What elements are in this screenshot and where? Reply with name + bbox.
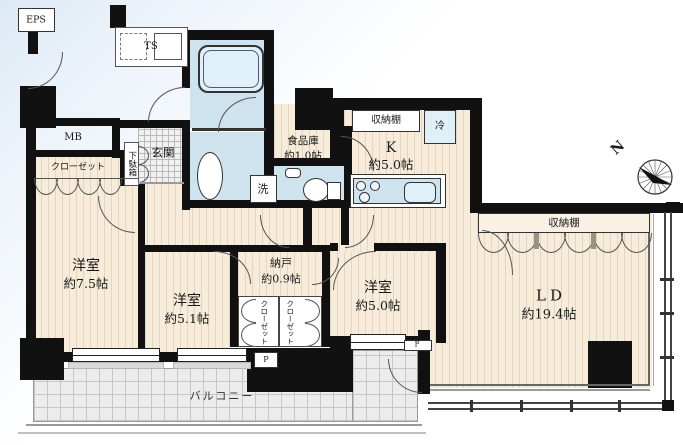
- pantry-name: 食品庫: [287, 136, 319, 147]
- bedroom-mid-size: 約5.1帖: [165, 313, 210, 326]
- kitchen-size: 約5.0帖: [369, 159, 414, 172]
- fridge-label: 冷: [435, 122, 445, 132]
- ts-inner-dashed: [120, 33, 147, 60]
- ld-name: LD: [536, 289, 566, 304]
- ld-shelf-label: 収納棚: [548, 218, 580, 229]
- closet-right-label: クローゼット: [283, 298, 297, 346]
- stove-burner: [359, 192, 370, 203]
- bedroom-right-name: 洋室: [364, 281, 392, 295]
- bedroom-main-size: 約7.5帖: [64, 278, 109, 291]
- window: [350, 334, 406, 350]
- shelf-support: [534, 233, 539, 249]
- wall-mb-bottom: [26, 150, 120, 157]
- railing-tick: [470, 400, 473, 412]
- wall-pantry-block: [295, 88, 333, 130]
- wall-segment: [182, 120, 190, 210]
- railing-right-2: [670, 212, 672, 404]
- ld-bottom-window-line-2: [430, 389, 650, 391]
- wall-ld-top: [470, 203, 683, 213]
- window: [177, 348, 247, 362]
- floor-plan: EPS TS MB 玄関 下駄箱 クローゼット 洋室 約7.5帖 洋室 約5.1…: [0, 0, 683, 445]
- wall-bath-top: [184, 30, 274, 40]
- genkan-step-line: [138, 182, 184, 184]
- wall-pillar-ld: [588, 341, 632, 388]
- railing-tick: [660, 312, 674, 315]
- shelf-support: [591, 233, 596, 249]
- railing-tick: [570, 400, 573, 412]
- wall-bedroom-right-ld: [436, 243, 446, 343]
- railing-tick: [520, 400, 523, 412]
- pipe-left-label: P: [263, 356, 268, 364]
- wall-pillar-bottom-left: [20, 338, 64, 380]
- railing-tick: [660, 278, 674, 281]
- railing-bottom-2: [428, 408, 666, 410]
- pipe-right-label: P: [415, 342, 420, 349]
- nando-size: 約0.9帖: [261, 274, 301, 285]
- mb-label: MB: [64, 133, 82, 143]
- ts-label: TS: [144, 42, 158, 52]
- window-sill: [68, 362, 164, 369]
- kitchen-name: K: [386, 141, 396, 155]
- wall-bedroom-main-right: [138, 184, 145, 354]
- toilet-sink: [285, 168, 301, 178]
- front-door-arc: [148, 87, 185, 122]
- railing-corner: [662, 400, 674, 411]
- pantry-size: 約1.0帖: [284, 151, 322, 162]
- ld-size: 約19.4帖: [522, 309, 577, 322]
- balcony-outer-line: [26, 424, 422, 426]
- shoe-cabinet-label: 下駄箱: [125, 144, 138, 184]
- washbasin: [197, 152, 223, 200]
- wall-stub: [330, 243, 338, 251]
- kitchen-sink: [404, 182, 436, 203]
- bathtub-inner: [203, 50, 259, 88]
- window: [72, 348, 160, 362]
- railing-tick: [618, 400, 621, 412]
- closet-main-label: クローゼット: [51, 164, 105, 173]
- compass-icon: [636, 158, 674, 196]
- ld-bottom-window-line: [430, 384, 650, 386]
- balcony-label: バルコニー: [190, 391, 255, 402]
- window-sill: [173, 362, 251, 369]
- bedroom-mid-name: 洋室: [173, 294, 201, 308]
- bedroom-main-name: 洋室: [72, 259, 100, 273]
- kitchen-shelf-label: 収納棚: [371, 116, 401, 126]
- laundry-label: 洗: [258, 184, 269, 195]
- wall-segment: [303, 208, 312, 245]
- ld-right-window-line-2: [653, 214, 654, 386]
- wall-corner-block: [666, 202, 680, 213]
- bedroom-right-size: 約5.0帖: [356, 300, 401, 313]
- toilet-tank: [327, 182, 341, 200]
- nando-name: 納戸: [270, 258, 292, 269]
- wall-segment: [110, 5, 126, 28]
- wall-bedroom-right-top: [374, 243, 438, 251]
- wall-kitchen-right: [470, 98, 482, 212]
- toilet-bowl: [303, 178, 329, 202]
- compass-north-label: N: [609, 139, 628, 158]
- railing-tick: [660, 356, 674, 359]
- wall-mb-top: [26, 118, 120, 126]
- genkan-label: 玄関: [152, 147, 175, 159]
- wall-kitchen-top: [330, 98, 472, 110]
- stove-burner: [370, 181, 380, 191]
- stove-burner: [356, 181, 366, 191]
- balcony-outer-line-2: [18, 432, 426, 434]
- closet-left-label: クローゼット: [257, 298, 271, 346]
- railing-bottom: [428, 402, 666, 404]
- railing-right: [664, 212, 666, 404]
- entry-door-arc: [28, 52, 63, 89]
- eps-label: EPS: [26, 15, 46, 25]
